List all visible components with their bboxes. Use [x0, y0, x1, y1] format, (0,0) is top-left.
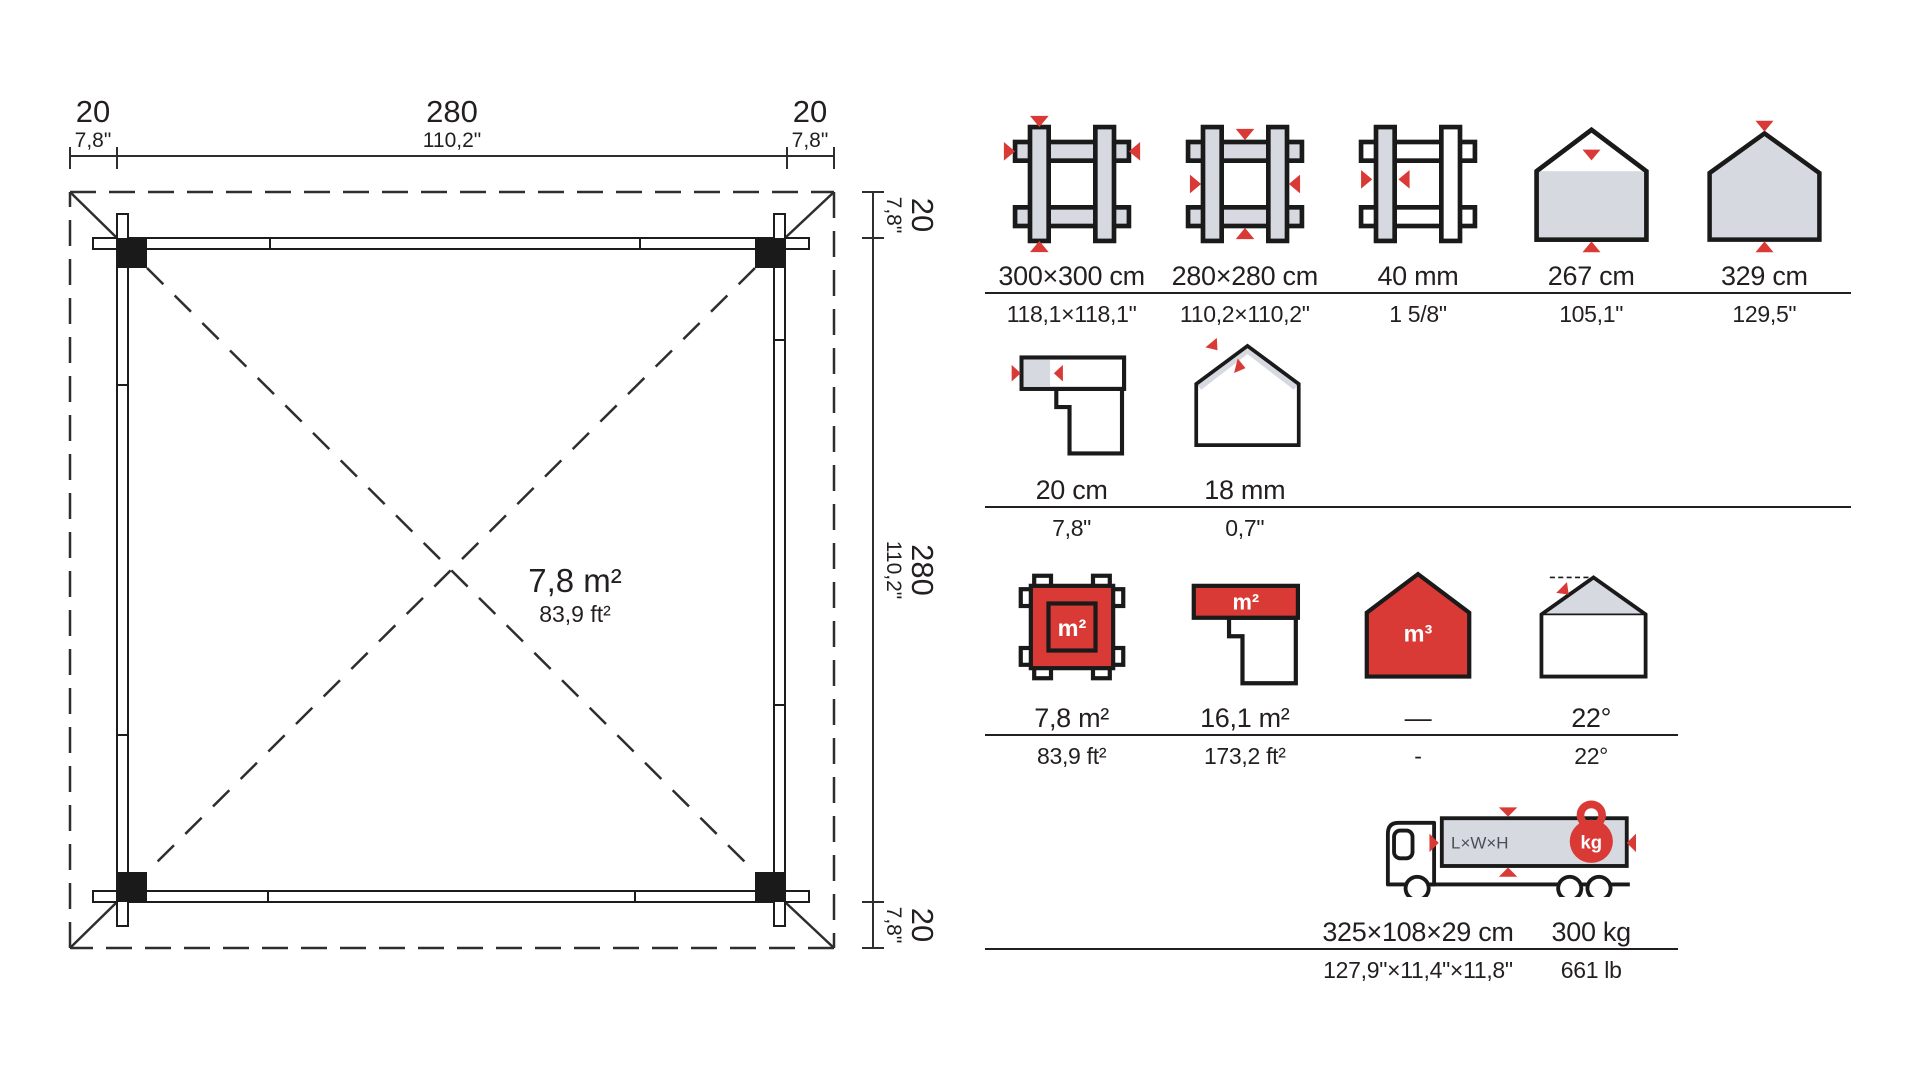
spec-row-areas: m² m² m³ [985, 564, 1851, 770]
inner-footprint-icon [1175, 114, 1315, 254]
dim-right-mid-in: 110,2" [882, 541, 905, 599]
dim-top-mid-cm: 280 [426, 94, 478, 129]
roof-board-thickness-icon [1183, 336, 1307, 460]
spec-value: 325×108×29 cm [1322, 917, 1513, 948]
spec-value: 16,1 m² [1200, 703, 1289, 734]
spec-value: 300 kg [1552, 917, 1631, 948]
spec-value-imperial: 7,8" [1052, 515, 1091, 542]
outer-footprint-icon [1002, 114, 1142, 254]
m2-label: m² [1232, 589, 1259, 614]
spec-row-roof: 20 cm 18 mm 7,8" 0,7" [985, 336, 1851, 542]
dim-top-mid-in: 110,2" [423, 129, 481, 152]
lwh-label: L×W×H [1451, 833, 1508, 852]
spec-value: 22° [1571, 703, 1611, 734]
floor-area-imperial: 83,9 ft² [539, 601, 611, 627]
spec-value: 40 mm [1377, 261, 1458, 292]
spec-value: 18 mm [1204, 475, 1285, 506]
floor-plan-drawing: 20 7,8" 280 110,2" 20 7,8" 20 7,8" 280 1… [0, 0, 960, 1080]
floor-area-icon: m² [1009, 564, 1135, 690]
dimension-line-right [862, 192, 884, 948]
spec-row-shipping: L×W×H kg 325×108×29 cm 300 kg [985, 798, 1851, 984]
spec-value-imperial: 83,9 ft² [1037, 743, 1106, 770]
spec-value: — [1405, 703, 1432, 734]
kg-label: kg [1580, 831, 1602, 852]
volume-icon: m³ [1355, 564, 1481, 690]
spec-value: 280×280 cm [1172, 261, 1318, 292]
spec-value-imperial: 105,1" [1559, 301, 1623, 328]
spec-value-imperial: 1 5/8" [1389, 301, 1447, 328]
roof-area-icon: m² [1182, 564, 1308, 690]
dim-right-mid-cm: 280 [905, 544, 940, 596]
dimension-labels-top: 20 7,8" 280 110,2" 20 7,8" [75, 94, 829, 152]
spec-table: 300×300 cm 280×280 cm 40 mm 267 cm 329 c… [985, 78, 1851, 984]
dim-top-right-in: 7,8" [792, 129, 829, 152]
spec-value: 20 cm [1036, 475, 1108, 506]
spec-value-imperial: 173,2 ft² [1204, 743, 1286, 770]
spec-value: 300×300 cm [998, 261, 1144, 292]
spec-value-imperial: 118,1×118,1" [1007, 301, 1137, 328]
spec-value-imperial: 129,5" [1732, 301, 1796, 328]
roof-pitch-icon [1528, 564, 1654, 690]
dim-right-top-in: 7,8" [882, 197, 905, 234]
spec-value-imperial: 22° [1574, 743, 1608, 770]
spec-row-dimensions: 300×300 cm 280×280 cm 40 mm 267 cm 329 c… [985, 78, 1851, 328]
spec-value: 7,8 m² [1034, 703, 1109, 734]
m2-label: m² [1057, 615, 1086, 641]
dim-right-top-cm: 20 [905, 198, 940, 232]
wall-height-icon [1524, 119, 1659, 254]
spec-value-imperial: 661 lb [1561, 957, 1622, 984]
ridge-height-icon [1697, 119, 1832, 254]
floor-area-label: 7,8 m² 83,9 ft² [528, 562, 622, 627]
roof-overhang-icon [1010, 336, 1134, 460]
m3-label: m³ [1404, 620, 1433, 646]
spec-value-imperial: 127,9"×11,4"×11,8" [1323, 957, 1513, 984]
spec-value: 329 cm [1721, 261, 1808, 292]
floor-area-metric: 7,8 m² [528, 562, 622, 599]
dim-top-right-cm: 20 [793, 94, 827, 129]
dim-right-bot-in: 7,8" [882, 907, 905, 944]
wall-thickness-icon [1348, 114, 1488, 254]
spec-value: 267 cm [1548, 261, 1635, 292]
delivery-truck-icon: L×W×H kg [1374, 798, 1636, 897]
cross-diagonals [147, 268, 755, 872]
dim-right-bot-cm: 20 [905, 908, 940, 942]
floor-plan: 20 7,8" 280 110,2" 20 7,8" 20 7,8" 280 1… [0, 0, 960, 1080]
spec-value-imperial: 0,7" [1225, 515, 1264, 542]
dimension-labels-right: 20 7,8" 280 110,2" 20 7,8" [882, 197, 940, 944]
spec-value-imperial: 110,2×110,2" [1180, 301, 1310, 328]
dim-top-left-in: 7,8" [75, 129, 112, 152]
spec-value-imperial: - [1414, 743, 1421, 770]
dim-top-left-cm: 20 [76, 94, 110, 129]
